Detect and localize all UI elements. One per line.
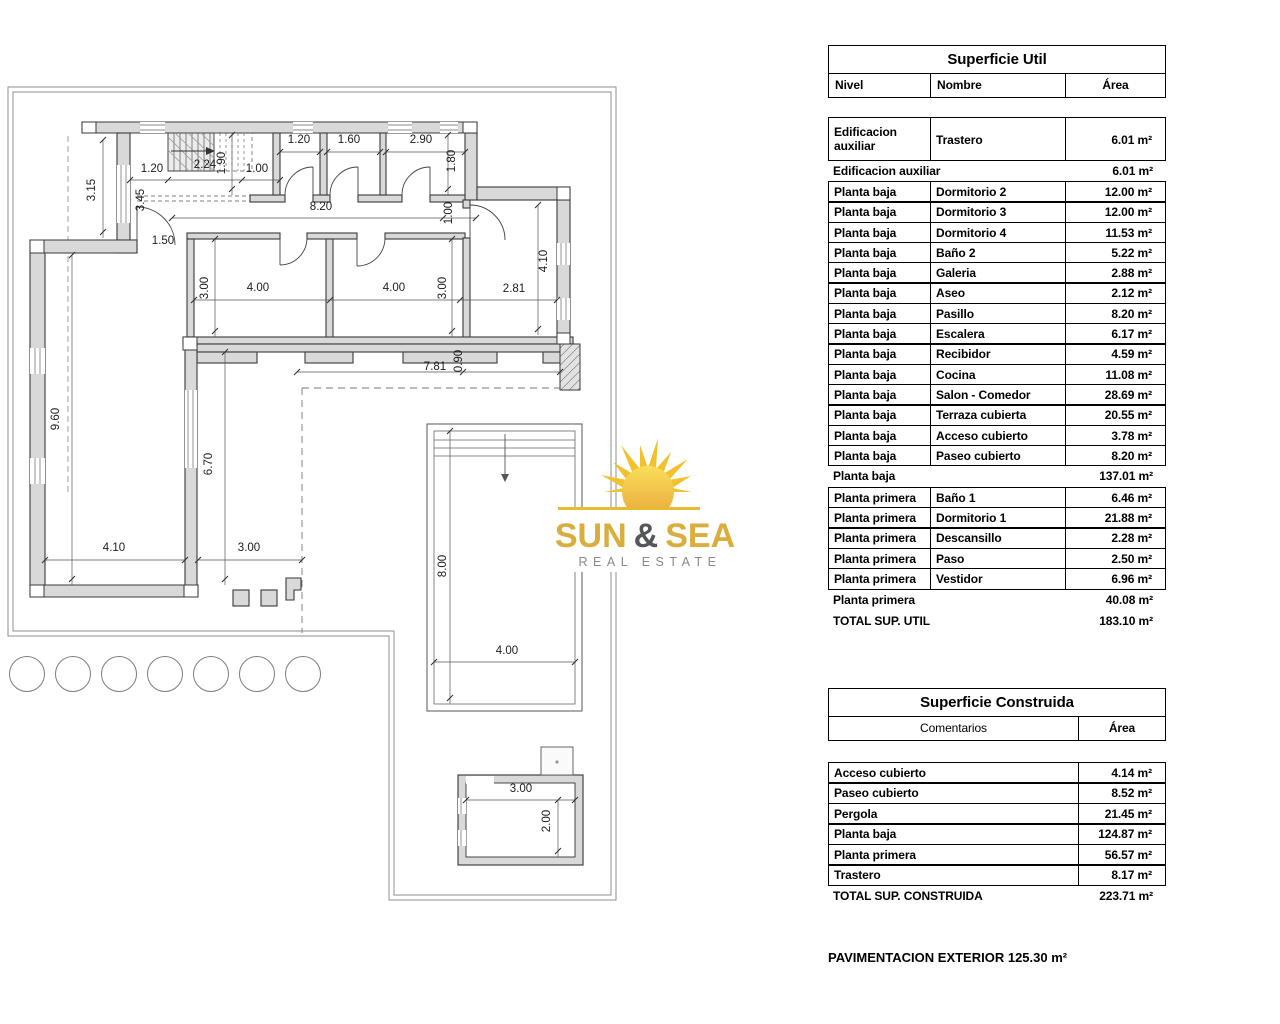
logo-wordmark: SUN&SEA — [555, 517, 735, 555]
dim-label: 2.00 — [541, 810, 553, 832]
table-superficie-construida: Superficie Construida Comentarios Área A… — [828, 688, 1166, 908]
table-cell: 21.45 m² — [1079, 804, 1165, 824]
logo-tagline: REAL ESTATE — [579, 555, 722, 569]
column-header-comentarios: Comentarios — [829, 717, 1079, 740]
table-cell: Paseo cubierto — [829, 783, 1079, 803]
table-row: Planta bajaDormitorio 411.53 m² — [828, 222, 1166, 244]
table-cell: Planta baja — [829, 304, 931, 324]
dim-label: 3.00 — [238, 542, 260, 554]
table-row: Planta bajaTerraza cubierta20.55 m² — [828, 404, 1166, 426]
table-row: Planta bajaDormitorio 312.00 m² — [828, 201, 1166, 223]
table-cell: Baño 2 — [931, 243, 1066, 263]
table-cell: 56.57 m² — [1079, 845, 1165, 865]
table-cell: 3.78 m² — [1066, 426, 1165, 446]
table-body: Acceso cubierto4.14 m²Paseo cubierto8.52… — [828, 762, 1166, 908]
table-cell: 6.01 m² — [993, 161, 1166, 183]
table-row: Pergola21.45 m² — [828, 803, 1166, 825]
table-body: Edificacion auxiliarTrastero6.01 m²Edifi… — [828, 117, 1166, 633]
dim-label: 1.60 — [338, 134, 360, 146]
table-row: Edificacion auxiliarTrastero6.01 m² — [828, 117, 1166, 161]
table-cell: 2.50 m² — [1066, 549, 1165, 569]
dim-label: 4.00 — [247, 282, 269, 294]
table-cell: 8.52 m² — [1079, 783, 1165, 803]
dim-label: 1.20 — [288, 134, 310, 146]
table-cell: Dormitorio 4 — [931, 223, 1066, 243]
table-cell: 6.46 m² — [1066, 488, 1165, 508]
table-row: Acceso cubierto4.14 m² — [828, 762, 1166, 784]
table-cell: 8.17 m² — [1079, 865, 1165, 885]
table-cell: Planta baja — [829, 243, 931, 263]
table-cell: Recibidor — [931, 344, 1066, 364]
table-cell: 6.17 m² — [1066, 324, 1165, 344]
table-cell: TOTAL SUP. CONSTRUIDA — [828, 886, 993, 908]
table-cell: Aseo — [931, 283, 1066, 303]
table-row: Planta bajaSalon - Comedor28.69 m² — [828, 384, 1166, 406]
dim-label: 1.20 — [141, 163, 163, 175]
table-cell: 6.01 m² — [1066, 118, 1165, 160]
dim-label: 4.00 — [496, 645, 518, 657]
table-row: Planta bajaRecibidor4.59 m² — [828, 343, 1166, 365]
table-cell: Dormitorio 1 — [931, 508, 1066, 528]
column-header-area: Área — [1066, 74, 1165, 97]
table-row: Planta bajaDormitorio 212.00 m² — [828, 181, 1166, 203]
exterior-paving-note: PAVIMENTACION EXTERIOR 125.30 m² — [828, 950, 1067, 965]
dim-label: 3.45 — [135, 189, 147, 211]
table-cell: Pergola — [829, 804, 1079, 824]
table-cell: TOTAL SUP. UTIL — [828, 611, 993, 633]
table-cell: 11.08 m² — [1066, 365, 1165, 385]
outbuilding-trastero — [458, 747, 583, 865]
table-cell: Edificacion auxiliar — [829, 118, 931, 160]
table-cell: Salon - Comedor — [931, 385, 1066, 405]
table-cell: 12.00 m² — [1066, 182, 1165, 202]
table-row: TOTAL SUP. UTIL183.10 m² — [828, 611, 1166, 633]
table-cell: 6.96 m² — [1066, 569, 1165, 589]
table-cell: 28.69 m² — [1066, 385, 1165, 405]
dim-label: 0.90 — [453, 350, 465, 372]
table-cell: Acceso cubierto — [829, 763, 1079, 783]
table-cell: Planta baja — [829, 824, 1079, 844]
table-cell: Planta primera — [829, 488, 931, 508]
table-cell: Pasillo — [931, 304, 1066, 324]
table-row: Planta primeraVestidor6.96 m² — [828, 568, 1166, 590]
table-row: TOTAL SUP. CONSTRUIDA223.71 m² — [828, 886, 1166, 908]
table-row: Planta baja124.87 m² — [828, 823, 1166, 845]
table-cell: Planta baja — [829, 223, 931, 243]
dim-label: 2.90 — [410, 134, 432, 146]
table-cell: Escalera — [931, 324, 1066, 344]
table-cell: Planta baja — [829, 202, 931, 222]
table-cell: Planta primera — [829, 508, 931, 528]
floor-plan-drawing: 3.153.451.202.241.901.001.201.602.901.80… — [0, 0, 830, 1024]
table-row: Planta primera40.08 m² — [828, 590, 1166, 612]
table-cell: Planta baja — [829, 405, 931, 425]
table-row: Planta primeraDormitorio 121.88 m² — [828, 507, 1166, 529]
table-cell: Acceso cubierto — [931, 426, 1066, 446]
table-cell: Edificacion auxiliar — [828, 161, 993, 183]
table-cell: Planta baja — [828, 466, 993, 488]
table-row: Planta bajaEscalera6.17 m² — [828, 323, 1166, 345]
table-cell: Planta baja — [829, 344, 931, 364]
dim-label: 1.00 — [443, 202, 455, 224]
table-cell: 2.28 m² — [1066, 528, 1165, 548]
table-cell: 8.20 m² — [1066, 446, 1165, 466]
dim-label: 4.00 — [383, 282, 405, 294]
column-header-nombre: Nombre — [931, 74, 1066, 97]
table-cell: 21.88 m² — [1066, 508, 1165, 528]
table-cell: 5.22 m² — [1066, 243, 1165, 263]
table-cell: Planta baja — [829, 426, 931, 446]
table-cell: Planta baja — [829, 324, 931, 344]
table-cell: Vestidor — [931, 569, 1066, 589]
table-row: Planta bajaBaño 25.22 m² — [828, 242, 1166, 264]
table-row: Trastero8.17 m² — [828, 864, 1166, 886]
dim-label: 1.90 — [216, 152, 228, 174]
table-cell: 2.12 m² — [1066, 283, 1165, 303]
table-header-row: Comentarios Área — [828, 717, 1166, 741]
table-row: Planta primeraPaso2.50 m² — [828, 548, 1166, 570]
dim-label: 2.24 — [194, 159, 217, 171]
dim-label: 1.80 — [446, 150, 458, 172]
table-row: Planta bajaGaleria2.88 m² — [828, 262, 1166, 284]
dim-label: 3.00 — [199, 277, 211, 299]
dim-label: 7.81 — [424, 361, 446, 373]
table-cell: Planta baja — [829, 283, 931, 303]
table-cell: Baño 1 — [931, 488, 1066, 508]
table-cell: 183.10 m² — [993, 611, 1166, 633]
table-row: Planta primeraDescansillo2.28 m² — [828, 527, 1166, 549]
table-cell: Planta primera — [829, 549, 931, 569]
dim-label: 4.10 — [103, 542, 125, 554]
table-cell: Trastero — [829, 865, 1079, 885]
table-header-row: Nivel Nombre Área — [828, 74, 1166, 98]
table-row: Planta primera56.57 m² — [828, 844, 1166, 866]
dim-label: 1.00 — [246, 163, 268, 175]
garden-trees — [10, 657, 321, 692]
dim-label: 8.20 — [310, 201, 332, 213]
table-cell: 223.71 m² — [993, 886, 1166, 908]
table-cell: Planta primera — [829, 569, 931, 589]
table-row: Planta primeraBaño 16.46 m² — [828, 487, 1166, 509]
table-cell: Paseo cubierto — [931, 446, 1066, 466]
floor-plan-page: 3.153.451.202.241.901.001.201.602.901.80… — [0, 0, 1280, 1024]
dim-label: 8.00 — [437, 555, 449, 577]
column-header-area: Área — [1079, 717, 1165, 740]
table-cell: 2.88 m² — [1066, 263, 1165, 283]
dim-label: 3.00 — [510, 783, 532, 795]
table-cell: 124.87 m² — [1079, 824, 1165, 844]
table-cell: Trastero — [931, 118, 1066, 160]
table-cell: Galeria — [931, 263, 1066, 283]
column-header-nivel: Nivel — [829, 74, 931, 97]
table-cell: 8.20 m² — [1066, 304, 1165, 324]
dim-label: 2.81 — [503, 283, 525, 295]
dim-label: 9.60 — [50, 408, 62, 430]
table-row: Planta bajaAcceso cubierto3.78 m² — [828, 425, 1166, 447]
table-title: Superficie Util — [828, 45, 1166, 74]
table-row: Planta bajaAseo2.12 m² — [828, 282, 1166, 304]
dim-label: 3.00 — [437, 277, 449, 299]
table-row: Planta baja137.01 m² — [828, 466, 1166, 488]
table-cell: 11.53 m² — [1066, 223, 1165, 243]
table-superficie-util: Superficie Util Nivel Nombre Área Edific… — [828, 45, 1166, 633]
table-cell: Planta primera — [829, 845, 1079, 865]
dim-label: 1.50 — [152, 235, 174, 247]
table-cell: 12.00 m² — [1066, 202, 1165, 222]
dim-label: 6.70 — [203, 453, 215, 475]
table-cell: 40.08 m² — [993, 590, 1166, 612]
table-cell: Cocina — [931, 365, 1066, 385]
table-cell: Descansillo — [931, 528, 1066, 548]
table-title: Superficie Construida — [828, 688, 1166, 717]
table-cell: 20.55 m² — [1066, 405, 1165, 425]
table-cell: Planta baja — [829, 385, 931, 405]
table-cell: Planta baja — [829, 446, 931, 466]
table-cell: 4.59 m² — [1066, 344, 1165, 364]
dim-label: 4.10 — [538, 250, 550, 272]
table-cell: Dormitorio 2 — [931, 182, 1066, 202]
table-cell: Planta baja — [829, 182, 931, 202]
table-cell: Dormitorio 3 — [931, 202, 1066, 222]
table-cell: 137.01 m² — [993, 466, 1166, 488]
table-cell: Terraza cubierta — [931, 405, 1066, 425]
table-cell: Planta baja — [829, 365, 931, 385]
table-row: Paseo cubierto8.52 m² — [828, 782, 1166, 804]
table-cell: Planta primera — [829, 528, 931, 548]
table-row: Planta bajaPasillo8.20 m² — [828, 303, 1166, 325]
table-row: Planta bajaPaseo cubierto8.20 m² — [828, 445, 1166, 467]
dim-label: 3.15 — [86, 179, 98, 201]
table-cell: Planta primera — [828, 590, 993, 612]
table-cell: Paso — [931, 549, 1066, 569]
hatched-wall-corner — [560, 344, 580, 390]
table-cell: 4.14 m² — [1079, 763, 1165, 783]
table-cell: Planta baja — [829, 263, 931, 283]
table-row: Planta bajaCocina11.08 m² — [828, 364, 1166, 386]
table-row: Edificacion auxiliar6.01 m² — [828, 161, 1166, 183]
